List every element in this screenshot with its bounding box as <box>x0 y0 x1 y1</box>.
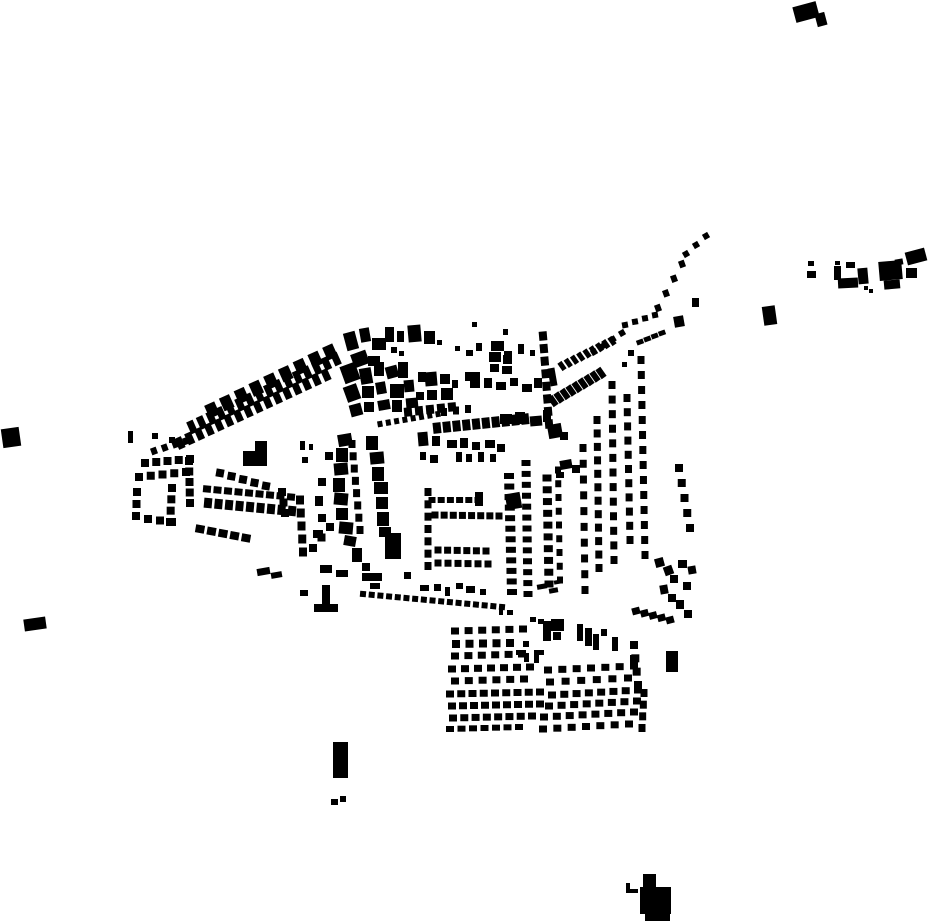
building <box>543 498 552 505</box>
building <box>128 431 133 443</box>
building <box>296 496 304 505</box>
building <box>457 690 465 697</box>
building <box>627 536 634 544</box>
building <box>522 515 531 521</box>
building <box>364 402 374 412</box>
building <box>440 374 450 384</box>
building <box>491 651 499 658</box>
building <box>478 652 486 659</box>
building <box>437 340 442 345</box>
building <box>612 637 618 651</box>
building <box>476 343 482 351</box>
building <box>456 497 463 503</box>
building <box>504 473 514 479</box>
building <box>278 488 286 496</box>
building <box>386 593 393 600</box>
building <box>425 537 432 545</box>
building <box>519 626 527 633</box>
building <box>608 699 616 706</box>
building <box>857 268 868 285</box>
building <box>434 584 441 591</box>
building <box>497 444 505 452</box>
building <box>522 384 532 392</box>
building <box>403 595 410 602</box>
building <box>278 365 294 382</box>
building <box>472 714 480 721</box>
building <box>429 597 436 604</box>
building <box>544 569 553 576</box>
building <box>506 639 514 647</box>
building <box>331 799 338 805</box>
building <box>581 554 588 562</box>
building <box>702 232 710 240</box>
building <box>905 248 928 266</box>
building <box>545 419 554 429</box>
building <box>595 497 602 505</box>
building <box>453 407 459 415</box>
building <box>354 501 361 509</box>
building <box>594 483 601 491</box>
building <box>362 563 370 571</box>
building <box>507 589 517 595</box>
building <box>625 451 632 459</box>
building <box>133 500 141 508</box>
building <box>502 366 512 374</box>
building <box>483 714 491 721</box>
building <box>359 367 374 385</box>
building <box>444 547 451 554</box>
building <box>339 521 354 534</box>
building <box>424 331 435 344</box>
building <box>465 677 473 684</box>
building <box>250 478 259 487</box>
building <box>452 640 460 648</box>
building <box>616 663 624 670</box>
building <box>530 350 535 356</box>
building <box>478 627 486 634</box>
building <box>398 362 408 378</box>
building <box>307 351 323 368</box>
building <box>424 372 437 387</box>
building <box>625 479 632 487</box>
building <box>468 512 475 519</box>
building <box>150 447 158 456</box>
building <box>376 497 388 509</box>
building <box>559 459 572 470</box>
building <box>543 486 552 493</box>
building <box>618 329 626 337</box>
building <box>581 570 588 578</box>
building <box>372 338 386 350</box>
building <box>360 591 367 598</box>
building <box>299 548 307 557</box>
building <box>486 512 493 519</box>
building <box>301 377 312 391</box>
building <box>523 547 532 553</box>
building <box>449 715 457 722</box>
building <box>668 594 676 602</box>
building <box>544 407 553 417</box>
building <box>626 493 633 501</box>
building <box>483 548 490 555</box>
building <box>218 529 228 538</box>
building <box>545 581 554 588</box>
building <box>587 665 595 672</box>
building <box>490 454 496 462</box>
building <box>156 517 164 525</box>
building <box>246 502 255 513</box>
building <box>465 497 472 503</box>
building <box>632 318 639 325</box>
building <box>524 591 533 597</box>
building <box>448 666 456 673</box>
building <box>215 468 224 477</box>
building <box>523 580 532 586</box>
building <box>543 510 552 517</box>
building <box>636 338 644 345</box>
building <box>311 373 322 387</box>
building <box>595 510 602 518</box>
building <box>377 592 384 599</box>
building <box>517 713 525 720</box>
building <box>557 563 563 570</box>
building <box>539 726 547 733</box>
building <box>435 411 441 418</box>
building <box>353 489 360 497</box>
building <box>300 590 308 596</box>
building <box>654 304 662 313</box>
building <box>370 451 385 464</box>
building <box>507 610 513 615</box>
building <box>503 329 508 335</box>
building <box>662 289 670 298</box>
building <box>504 724 512 730</box>
building <box>506 536 516 542</box>
building <box>481 417 490 429</box>
building <box>397 331 404 342</box>
building <box>624 394 631 402</box>
building <box>451 678 459 685</box>
building <box>343 383 362 403</box>
building <box>577 624 583 641</box>
building <box>504 484 514 490</box>
building <box>624 408 631 416</box>
building <box>458 726 466 732</box>
building <box>683 582 691 590</box>
building <box>463 547 470 554</box>
building <box>522 471 531 477</box>
building <box>638 401 645 409</box>
building <box>465 627 473 634</box>
building <box>318 478 326 486</box>
building <box>267 504 276 515</box>
building <box>418 413 424 420</box>
building <box>609 439 616 447</box>
building <box>591 711 599 718</box>
building <box>544 533 553 540</box>
building <box>475 497 482 503</box>
building <box>427 390 437 400</box>
building <box>185 468 193 476</box>
building <box>633 668 641 676</box>
building <box>630 709 638 716</box>
building <box>641 689 648 697</box>
building <box>596 564 603 572</box>
building <box>556 522 562 529</box>
building <box>392 400 402 412</box>
building <box>610 527 617 535</box>
building <box>170 469 178 477</box>
building <box>608 675 616 682</box>
building <box>425 488 432 496</box>
building <box>318 534 326 542</box>
building <box>473 547 480 554</box>
building <box>594 456 601 464</box>
building <box>255 441 267 466</box>
building <box>377 421 383 428</box>
building <box>595 537 602 545</box>
building <box>601 629 607 636</box>
building <box>639 416 646 424</box>
building <box>159 471 167 479</box>
building <box>391 347 397 353</box>
building <box>470 702 478 709</box>
building <box>617 709 625 716</box>
building <box>203 485 212 493</box>
building <box>580 444 587 452</box>
building <box>807 271 816 278</box>
building <box>643 874 656 888</box>
building <box>427 412 433 419</box>
building <box>640 609 650 618</box>
building <box>461 665 469 672</box>
building <box>579 711 587 718</box>
building <box>455 560 462 567</box>
building-footprint-map <box>0 0 930 924</box>
building <box>678 560 687 568</box>
building <box>336 448 348 462</box>
building <box>451 628 459 635</box>
building <box>464 652 472 659</box>
building <box>678 479 686 487</box>
building <box>135 473 143 481</box>
building <box>609 688 617 695</box>
building <box>480 690 488 697</box>
building <box>410 415 416 422</box>
building <box>594 470 601 478</box>
building <box>235 501 244 512</box>
building <box>298 535 306 544</box>
building <box>141 459 149 467</box>
building <box>441 512 448 519</box>
building <box>530 617 536 622</box>
building <box>596 722 604 729</box>
building <box>420 585 429 591</box>
building <box>631 654 639 662</box>
building <box>357 526 364 534</box>
building <box>447 599 454 606</box>
building <box>641 506 648 514</box>
building <box>256 567 270 576</box>
building <box>161 443 169 452</box>
building <box>314 604 338 612</box>
building <box>412 596 419 603</box>
building <box>560 432 568 440</box>
building <box>374 362 384 376</box>
building <box>546 679 554 686</box>
building <box>492 725 500 731</box>
building <box>692 298 699 307</box>
building <box>503 701 511 708</box>
building <box>186 478 194 486</box>
building <box>501 415 510 427</box>
building <box>514 701 522 708</box>
building <box>593 676 601 683</box>
building <box>167 507 175 515</box>
building <box>243 451 255 466</box>
building <box>420 452 426 460</box>
building <box>147 472 155 480</box>
building <box>594 429 601 437</box>
building <box>906 268 917 278</box>
building <box>350 452 357 460</box>
building <box>543 522 552 529</box>
building <box>505 505 515 511</box>
building <box>835 261 840 265</box>
building <box>492 626 500 633</box>
building <box>594 443 601 451</box>
building <box>548 692 556 699</box>
building <box>595 551 602 559</box>
building <box>435 547 442 554</box>
building <box>133 488 141 496</box>
building <box>556 508 562 515</box>
building <box>169 437 175 443</box>
building <box>213 486 222 494</box>
building <box>609 396 616 404</box>
building <box>460 438 468 448</box>
building <box>686 524 694 532</box>
building <box>475 560 482 567</box>
building <box>425 500 432 508</box>
building <box>522 504 531 510</box>
building <box>333 742 348 778</box>
building <box>625 721 633 728</box>
building <box>542 381 551 391</box>
building <box>227 472 236 481</box>
building <box>374 482 388 494</box>
building <box>676 600 684 609</box>
building <box>462 419 471 431</box>
building <box>297 509 305 518</box>
building <box>558 666 566 673</box>
building <box>609 410 616 418</box>
building <box>638 386 645 394</box>
building <box>506 676 514 683</box>
building <box>553 725 561 732</box>
building <box>494 713 502 720</box>
building <box>675 464 683 472</box>
building <box>651 332 659 339</box>
building <box>523 641 529 647</box>
building <box>485 561 492 568</box>
building <box>683 509 691 517</box>
building <box>343 535 357 547</box>
building <box>641 521 648 529</box>
building <box>654 557 665 568</box>
building <box>320 565 332 573</box>
building <box>425 513 432 521</box>
building <box>622 362 627 367</box>
building <box>573 690 581 697</box>
building <box>238 475 247 484</box>
building <box>474 665 482 672</box>
building <box>582 723 590 730</box>
building <box>639 431 646 439</box>
building <box>502 689 510 696</box>
building <box>402 416 408 423</box>
building <box>639 724 646 732</box>
building <box>534 378 542 388</box>
building <box>520 676 528 683</box>
building <box>581 523 588 531</box>
building <box>534 650 544 655</box>
building <box>506 568 516 574</box>
building <box>390 384 404 398</box>
building <box>459 512 466 519</box>
building <box>479 640 487 648</box>
building <box>510 378 518 386</box>
building <box>466 586 475 593</box>
building <box>549 587 559 593</box>
building <box>544 667 552 674</box>
building <box>385 327 394 342</box>
building <box>480 589 486 595</box>
building <box>505 626 513 633</box>
building <box>352 548 362 562</box>
building <box>626 889 638 893</box>
building <box>362 573 382 581</box>
building <box>582 586 589 594</box>
building <box>466 454 472 462</box>
building <box>445 587 450 596</box>
building <box>566 712 574 719</box>
building <box>315 496 323 506</box>
building <box>362 386 374 398</box>
building <box>349 403 364 418</box>
building <box>271 571 283 579</box>
building <box>624 675 632 682</box>
building <box>441 388 453 400</box>
building <box>684 610 692 618</box>
building <box>465 405 471 413</box>
building <box>469 725 477 731</box>
building <box>568 724 576 731</box>
building <box>404 572 411 579</box>
building <box>638 371 645 379</box>
building <box>543 621 551 641</box>
building <box>525 689 533 696</box>
building <box>432 422 441 434</box>
building <box>523 569 532 575</box>
building <box>624 437 631 445</box>
building <box>572 465 580 473</box>
building <box>302 457 308 463</box>
building <box>658 329 666 336</box>
building <box>609 454 616 462</box>
building <box>430 455 438 463</box>
building <box>610 469 617 477</box>
